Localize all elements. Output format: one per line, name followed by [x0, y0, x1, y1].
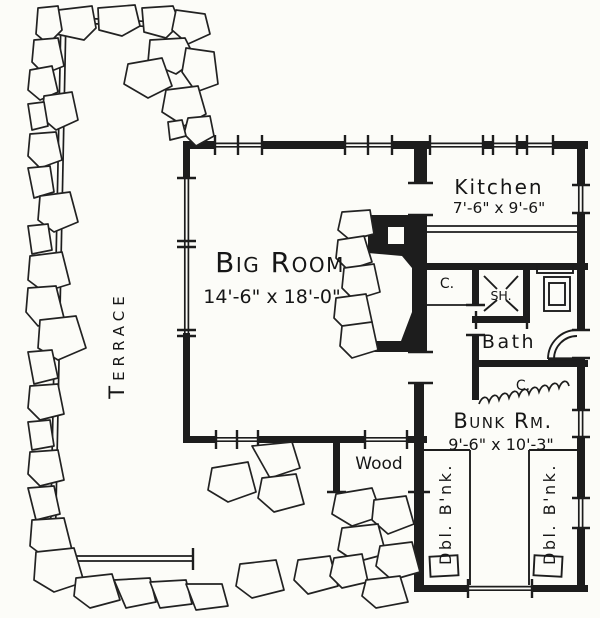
room-labels: Big Room 14'-6" x 18'-0" Kitchen 7'-6" x…: [105, 175, 559, 565]
floor-plan-canvas: Big Room 14'-6" x 18'-0" Kitchen 7'-6" x…: [0, 0, 600, 618]
big-room-label: Big Room: [215, 246, 345, 279]
kitchen-label: Kitchen: [454, 175, 543, 199]
closet-hall-label: C.: [440, 276, 454, 292]
shower-label: SH.: [490, 288, 511, 303]
bunk-room-label: Bunk Rm.: [453, 409, 552, 433]
wood-label: Wood: [355, 454, 402, 474]
bath-label: Bath: [482, 331, 536, 353]
big-room-dims: 14'-6" x 18'-0": [203, 286, 341, 308]
bunk-left-label: Dbl. B'nk.: [436, 463, 455, 565]
floor-plan-drawing: Big Room 14'-6" x 18'-0" Kitchen 7'-6" x…: [0, 0, 600, 618]
bunk-right-label: Dbl. B'nk.: [540, 463, 559, 565]
closet-bunk-label: C.: [516, 378, 530, 394]
kitchen-dims: 7'-6" x 9'-6": [453, 199, 545, 217]
toilet: [537, 264, 573, 311]
bunk-room-dims: 9'-6" x 10'-3": [448, 435, 554, 454]
terrace-label: Terrace: [105, 291, 129, 400]
bath-door-arc: [548, 330, 577, 359]
